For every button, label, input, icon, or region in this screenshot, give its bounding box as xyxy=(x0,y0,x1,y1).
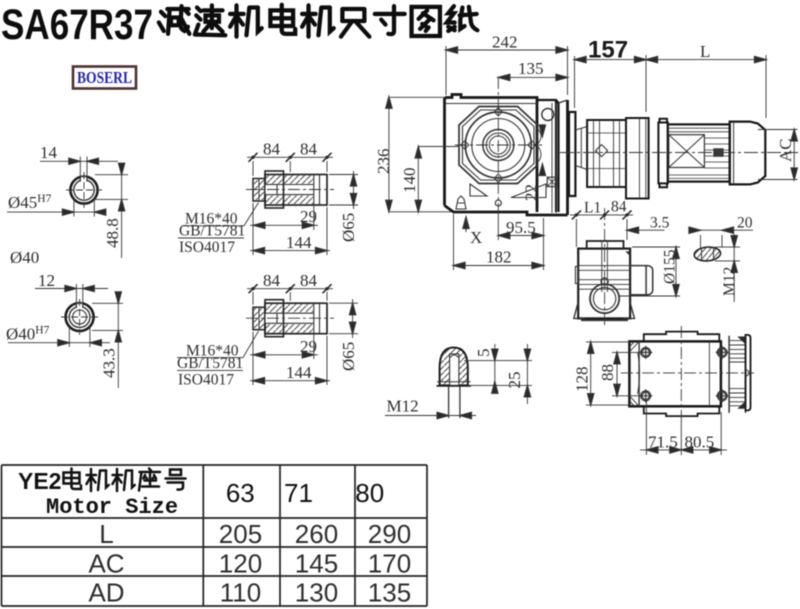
svg-text:95.5: 95.5 xyxy=(506,218,536,237)
svg-text:145: 145 xyxy=(295,549,338,579)
svg-text:ISO4017: ISO4017 xyxy=(179,239,235,256)
svg-text:Ø155: Ø155 xyxy=(662,249,679,284)
svg-text:205: 205 xyxy=(219,519,262,549)
svg-text:84: 84 xyxy=(300,271,318,290)
svg-text:48.8: 48.8 xyxy=(103,218,122,248)
svg-text:5: 5 xyxy=(474,349,493,358)
svg-text:M12: M12 xyxy=(721,267,738,296)
svg-text:12: 12 xyxy=(38,271,55,290)
svg-text:84: 84 xyxy=(611,199,627,216)
svg-text:182: 182 xyxy=(486,248,512,267)
svg-text:AD: AD xyxy=(88,578,124,608)
svg-text:ISO4017: ISO4017 xyxy=(178,372,234,389)
svg-text:GB/T5781: GB/T5781 xyxy=(177,355,243,372)
svg-text:Motor Size: Motor Size xyxy=(46,495,178,520)
svg-text:63: 63 xyxy=(226,478,255,508)
svg-text:Ø65: Ø65 xyxy=(339,342,358,371)
svg-text:YE2: YE2 xyxy=(18,468,61,494)
svg-text:3.5: 3.5 xyxy=(650,215,670,232)
svg-text:AC: AC xyxy=(88,549,124,579)
svg-text:BOSERL: BOSERL xyxy=(77,68,132,87)
svg-text:25: 25 xyxy=(505,372,524,389)
svg-text:L: L xyxy=(99,519,113,549)
svg-text:260: 260 xyxy=(295,519,338,549)
svg-text:29: 29 xyxy=(300,207,317,226)
svg-text:236: 236 xyxy=(374,149,393,175)
svg-text:Ø65: Ø65 xyxy=(339,213,358,242)
svg-text:29: 29 xyxy=(300,337,317,356)
svg-text:71.5: 71.5 xyxy=(648,433,678,452)
svg-text:GB/T5781: GB/T5781 xyxy=(179,223,245,240)
svg-text:80.5: 80.5 xyxy=(685,433,715,452)
svg-text:128: 128 xyxy=(573,367,592,393)
svg-text:135: 135 xyxy=(368,578,411,608)
svg-text:110: 110 xyxy=(220,578,261,608)
svg-text:84: 84 xyxy=(300,140,318,159)
svg-text:20: 20 xyxy=(737,215,753,232)
svg-text:80: 80 xyxy=(355,478,384,508)
svg-text:170: 170 xyxy=(368,549,411,579)
svg-text:84: 84 xyxy=(263,271,281,290)
svg-text:22: 22 xyxy=(522,184,541,201)
svg-text:71: 71 xyxy=(284,478,313,508)
svg-text:L: L xyxy=(700,42,710,61)
svg-text:X: X xyxy=(470,228,482,247)
svg-text:88: 88 xyxy=(598,364,617,381)
svg-text:140: 140 xyxy=(400,168,419,194)
svg-text:Ø40: Ø40 xyxy=(10,248,39,267)
svg-text:84: 84 xyxy=(263,140,281,159)
svg-text:130: 130 xyxy=(295,578,338,608)
svg-text:M12: M12 xyxy=(387,397,419,416)
svg-text:120: 120 xyxy=(219,549,262,579)
svg-text:SA67R37: SA67R37 xyxy=(1,1,153,49)
svg-text:144: 144 xyxy=(286,363,312,382)
svg-text:290: 290 xyxy=(368,519,411,549)
svg-text:AC: AC xyxy=(776,138,795,162)
svg-text:14: 14 xyxy=(40,143,58,162)
svg-text:144: 144 xyxy=(286,233,312,252)
svg-text:135: 135 xyxy=(518,59,544,78)
svg-text:43.3: 43.3 xyxy=(100,348,119,378)
svg-text:157: 157 xyxy=(588,37,628,64)
svg-text:242: 242 xyxy=(492,33,518,52)
svg-text:L1: L1 xyxy=(584,200,601,217)
